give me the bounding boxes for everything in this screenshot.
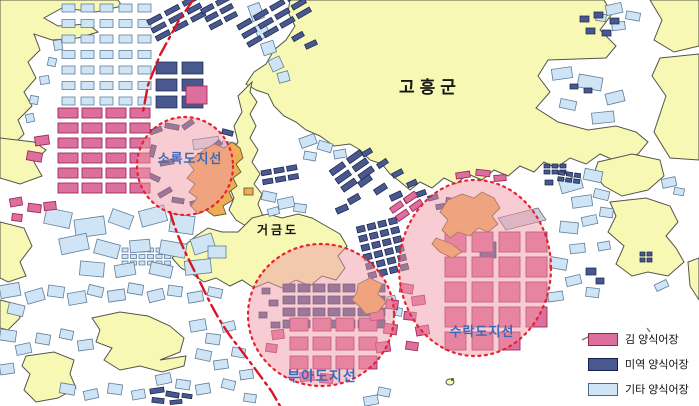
farm-plot: [107, 289, 125, 302]
farm-plot: [303, 151, 316, 161]
zone-circle-buado: [248, 244, 394, 386]
farm-plot: [35, 333, 51, 345]
farm-plot: [47, 57, 56, 66]
county-label: 고흥군: [399, 77, 461, 97]
farm-plot: [294, 203, 307, 213]
farm-plot: [382, 238, 391, 246]
farm-plot: [58, 153, 78, 163]
farm-plot: [175, 379, 190, 390]
farm-plot: [156, 96, 177, 108]
farm-plot: [119, 97, 132, 105]
right-island-1: [650, 0, 699, 52]
farm-plot: [277, 196, 295, 209]
farm-plot: [0, 329, 17, 342]
farm-plot: [138, 35, 151, 43]
farm-plot: [58, 108, 78, 118]
farm-plot: [67, 291, 87, 306]
farm-plot: [58, 138, 78, 148]
farm-plot: [87, 284, 104, 297]
farm-plot: [647, 252, 652, 256]
farm-plot: [222, 129, 234, 137]
farm-plot: [560, 164, 566, 168]
farm-plot: [597, 241, 610, 251]
farm-plot: [647, 258, 652, 262]
farm-plot: [239, 369, 253, 380]
farm-plot: [82, 138, 102, 148]
farm-plot: [367, 223, 376, 231]
farm-plot: [82, 153, 102, 163]
farm-plot: [107, 383, 122, 395]
farm-plot: [551, 67, 572, 81]
farm-plot: [62, 51, 75, 59]
farm-plot: [138, 66, 151, 74]
farm-plot: [387, 257, 396, 265]
farm-plot: [200, 4, 214, 15]
farm-plot: [654, 280, 669, 292]
legend-row-gita: 기타 양식어장: [588, 381, 698, 397]
farm-plot: [244, 393, 257, 403]
farm-plot: [261, 169, 272, 176]
zone-label-sorokdo: 소록도지선: [158, 151, 223, 166]
farm-plot: [131, 255, 137, 259]
farm-plot: [586, 28, 595, 34]
farm-plot: [208, 246, 226, 258]
farm-plot: [9, 197, 22, 207]
farm-plot: [661, 177, 677, 189]
farm-plot: [82, 168, 102, 178]
farm-plot: [570, 84, 578, 89]
farm-plot: [106, 153, 126, 163]
farm-plot: [476, 169, 491, 176]
farm-plot: [195, 349, 212, 362]
farm-plot: [552, 170, 558, 174]
farm-plot: [359, 234, 368, 242]
farm-plot: [12, 213, 23, 221]
farm-plot: [81, 35, 94, 43]
farm-plot: [195, 383, 211, 395]
farm-plot: [106, 168, 126, 178]
farm-plot: [361, 244, 370, 252]
farm-plot: [59, 233, 90, 254]
farm-plot: [221, 379, 236, 391]
farm-plot: [139, 255, 145, 259]
farm-plot: [205, 11, 219, 22]
farm-plot: [81, 66, 94, 74]
farm-plot: [586, 287, 600, 297]
farm-plot: [640, 252, 645, 256]
farm-plot: [559, 221, 578, 234]
farm-plot: [275, 176, 286, 183]
farm-plot: [404, 191, 418, 203]
farm-plot: [625, 11, 640, 21]
farm-plot: [130, 123, 150, 133]
farm-plot: [119, 66, 132, 74]
farm-plot: [25, 113, 34, 122]
farm-plot: [170, 399, 182, 404]
farm-plot: [286, 165, 297, 172]
farm-plot: [100, 20, 113, 28]
farm-plot: [565, 274, 582, 286]
farm-plot: [378, 220, 387, 228]
farm-plot: [591, 111, 614, 124]
farm-plot: [580, 16, 589, 22]
farm-plot: [58, 123, 78, 133]
farm-plot: [100, 51, 113, 59]
sorokdo-orange-islet: [244, 188, 253, 195]
farm-plot: [167, 285, 182, 297]
farm-plot: [108, 209, 133, 230]
farm-plot: [220, 3, 234, 14]
farm-plot: [81, 51, 94, 59]
tiny-islet-mark: [451, 378, 454, 381]
farm-plot: [62, 35, 75, 43]
farm-plot: [640, 258, 645, 262]
farm-plot: [566, 172, 572, 177]
right-island-2: [652, 54, 699, 160]
farm-plot: [119, 82, 132, 90]
farm-plot: [213, 359, 228, 370]
right-island-5: [688, 258, 699, 300]
zone-circle-sorokdo: [137, 117, 233, 215]
farm-plot: [594, 12, 603, 18]
farm-plot: [221, 321, 236, 333]
farm-plot: [380, 229, 389, 237]
farm-plot: [164, 4, 180, 15]
farm-plot: [62, 20, 75, 28]
legend-row-kim: 김 양식어장: [588, 331, 698, 347]
farm-plot: [377, 387, 390, 397]
farm-plot: [26, 151, 42, 162]
farm-plot: [247, 35, 262, 47]
legend-label-miyeok: 미역 양식어장: [625, 356, 689, 372]
farm-plot: [100, 66, 113, 74]
farm-plot: [596, 278, 604, 284]
farm-plot: [82, 183, 102, 193]
farm-plot: [571, 195, 592, 209]
farm-grid: [147, 0, 206, 41]
farm-plot: [374, 250, 383, 258]
farm-plot: [147, 14, 163, 25]
farm-plot: [584, 88, 592, 93]
farm-plot: [131, 389, 145, 400]
farm-plot: [574, 173, 580, 178]
farm-plot: [215, 0, 229, 6]
farm-plot: [47, 285, 64, 298]
farm-plot: [356, 225, 365, 233]
farm-plot: [77, 339, 93, 351]
farm-plot: [62, 82, 75, 90]
farm-plot: [369, 232, 378, 240]
farm-plot: [82, 108, 102, 118]
farm-plot: [44, 201, 57, 210]
farm-plot: [391, 226, 400, 234]
farm-plot: [274, 167, 285, 174]
farm-plot: [155, 373, 172, 386]
farm-plot: [406, 341, 419, 351]
farm-plot: [59, 329, 74, 341]
farm-plot: [299, 134, 317, 149]
farm-plot: [393, 236, 402, 244]
legend-swatch-kim: [588, 333, 618, 346]
farm-plot: [205, 333, 220, 345]
farm-plot: [673, 187, 684, 196]
farm-plot: [119, 51, 132, 59]
farm-plot: [28, 203, 42, 213]
farm-plot: [335, 204, 348, 214]
farm-plot: [100, 82, 113, 90]
farm-plot: [25, 288, 46, 304]
farm-plot: [148, 255, 154, 259]
farm-plot: [390, 201, 404, 213]
farm-plot: [570, 243, 586, 254]
farm-plot: [138, 51, 151, 59]
farm-plot: [106, 138, 126, 148]
farm-plot: [152, 397, 164, 403]
farm-plot: [0, 363, 15, 375]
farm-plot: [62, 66, 75, 74]
farm-plot: [224, 11, 238, 22]
farm-plot: [558, 177, 564, 182]
farm-plot: [127, 283, 144, 295]
farm-plot: [130, 239, 151, 253]
legend-row-miyeok: 미역 양식어장: [588, 356, 698, 372]
farm-plot: [166, 391, 180, 398]
farm-plot: [363, 395, 378, 406]
legend-label-kim: 김 양식어장: [625, 331, 679, 347]
farm-plot: [122, 248, 128, 252]
map-canvas: 고흥군 거금도 소록도지선 부아도지선 수락도지선 김 양식어장 미역 양식어장…: [0, 0, 699, 406]
farm-plot: [605, 2, 623, 15]
farm-plot: [395, 209, 409, 221]
farm-plot: [605, 90, 625, 105]
farm-plot: [138, 4, 151, 12]
farm-plot: [376, 259, 385, 267]
farm-plot: [573, 179, 579, 184]
farm-plot: [0, 282, 21, 298]
farm-plot: [29, 95, 38, 104]
farm-plot: [187, 291, 204, 303]
farm-plot: [106, 183, 126, 193]
farm-plot: [602, 30, 611, 36]
farm-plot: [119, 4, 132, 12]
farm-plot: [581, 215, 598, 227]
farm-plot: [242, 27, 257, 39]
farm-plot: [150, 387, 165, 394]
farm-plot: [81, 82, 94, 90]
farm-grid: [261, 165, 299, 185]
right-island-3: [594, 154, 664, 196]
farm-plot: [593, 188, 610, 200]
farm-plot: [189, 319, 207, 333]
farm-plot: [547, 291, 563, 302]
west-small-island: [0, 222, 32, 282]
farm-plot: [119, 20, 132, 28]
farm-plot: [586, 268, 596, 275]
farm-plot: [94, 239, 121, 259]
farm-plot: [151, 22, 167, 33]
farm-plot: [280, 16, 295, 28]
legend: 김 양식어장 미역 양식어장 기타 양식어장: [588, 331, 698, 397]
farm-plot: [82, 123, 102, 133]
farm-plot: [62, 97, 75, 105]
farm-plot: [207, 287, 223, 299]
farm-plot: [182, 393, 192, 398]
farm-plot: [372, 241, 381, 249]
farm-plot: [156, 62, 177, 74]
farm-plot: [106, 123, 126, 133]
farm-plot: [81, 97, 94, 105]
legend-label-gita: 기타 양식어장: [625, 381, 689, 397]
farm-plot: [58, 168, 78, 178]
farm-plot: [262, 178, 273, 185]
geogeumdo-label: 거금도: [257, 222, 299, 237]
farm-plot: [494, 174, 506, 181]
farm-plot: [83, 389, 99, 401]
farm-plot: [237, 18, 252, 30]
farm-plot: [130, 108, 150, 118]
farm-plot: [288, 174, 299, 181]
farm-plot: [559, 98, 577, 110]
farm-plot: [39, 75, 49, 84]
farm-plot: [59, 383, 76, 395]
farm-plot: [34, 135, 49, 146]
farm-plot: [114, 262, 136, 277]
farm-plot: [599, 207, 613, 218]
farm-plot: [565, 178, 571, 183]
farm-plot: [100, 4, 113, 12]
farm-plot: [79, 261, 104, 277]
farm-plot: [122, 255, 128, 259]
farm-plot: [119, 35, 132, 43]
farm-plot: [81, 4, 94, 12]
legend-swatch-gita: [588, 383, 618, 396]
zone-label-buado: 부아도지선: [287, 368, 356, 384]
legend-swatch-miyeok: [588, 358, 618, 371]
farm-plot: [544, 164, 550, 168]
farm-plot: [53, 39, 63, 50]
farm-plot: [610, 18, 619, 24]
farm-plot: [106, 108, 126, 118]
farm-plot: [100, 35, 113, 43]
farm-plot: [389, 266, 398, 274]
farm-plot: [384, 248, 393, 256]
farm-plot: [156, 255, 162, 259]
zone-label-surakdo: 수락도지선: [450, 324, 515, 339]
farm-plot: [267, 207, 280, 217]
farm-plot: [389, 191, 402, 202]
farm-plot: [261, 191, 277, 203]
farm-plot: [156, 79, 177, 91]
farm-plot: [15, 343, 32, 356]
farm-plot: [545, 180, 553, 185]
farm-plot: [552, 164, 558, 168]
farm-plot: [558, 171, 564, 176]
farm-plot: [373, 183, 387, 195]
farm-plot: [62, 4, 75, 12]
right-island-4: [608, 198, 684, 276]
farm-plot: [100, 97, 113, 105]
farm-plot: [270, 0, 285, 11]
farm-plot: [209, 19, 223, 30]
farm-plot: [81, 20, 94, 28]
farm-plot: [275, 8, 290, 20]
farm-plot: [58, 183, 78, 193]
farm-plot: [333, 149, 346, 159]
south-island-long: [92, 312, 186, 372]
farm-plot: [147, 288, 165, 303]
farm-plot: [347, 193, 360, 204]
farm-plot: [186, 86, 207, 104]
farm-plot: [544, 170, 550, 174]
farm-plot: [182, 62, 203, 74]
farm-plot: [139, 261, 145, 265]
